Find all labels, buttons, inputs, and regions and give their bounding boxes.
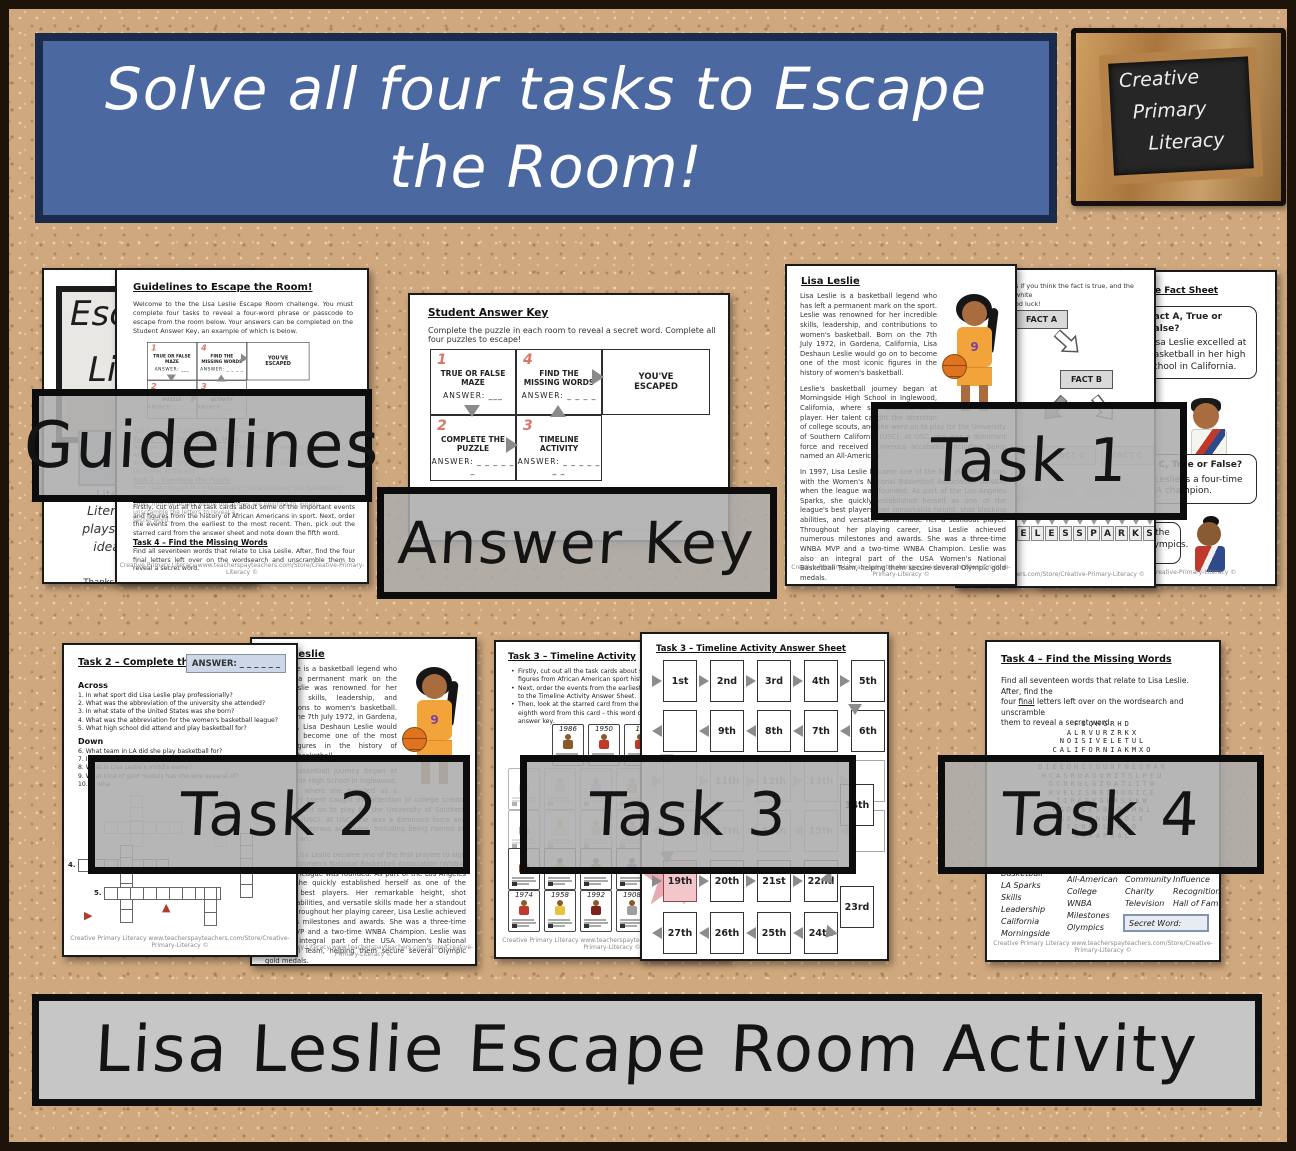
basketball-icon [942,354,967,379]
timeline-box-label: 21st [762,876,785,887]
across-list: 1. In what sport did Lisa Leslie play pr… [78,692,283,733]
timeline-box-label: 6th [859,726,877,737]
word-item: WNBA [1067,898,1118,910]
timeline-box-label: 26th [715,928,740,939]
timeline-arrow-icon [699,675,709,687]
timeline-box-label: 20th [715,876,740,887]
guidelines-task4-heading: Task 4 – Find the Missing Words [133,538,268,547]
crossword-slot-down-c [204,887,217,926]
timeline-arrow-icon [746,725,756,737]
timeline-arrow-icon [793,927,803,939]
arrow-down-icon [464,405,480,417]
banner-line-2: the Room! [389,128,703,206]
ak-ans-1: ANSWER: ___ [431,391,515,400]
timeline-arrow-icon [699,875,709,887]
across-item: 3. In what state of the United States wa… [78,708,283,716]
guidelines-label-text: Guidelines [22,409,383,483]
fact-bubble-a-line: Lisa Leslie excelled at [1148,338,1250,350]
timeline-box-label: 19th [668,876,693,887]
timeline-box: 8th [757,710,791,752]
task-cards-row: 1974 1958 1992 1908 [508,890,648,932]
maze-letter-tile: R [1115,526,1128,541]
guidelines-task3-text: Firstly, cut out all the task cards abou… [133,504,355,539]
secret-word-box: Secret Word: [1123,914,1209,932]
timeline-arrow-icon [652,927,662,939]
maze-letter-column: S [1073,518,1086,541]
ak-ans-3: ANSWER: _ _ _ _ _ _ _ [517,457,601,475]
task2-answer-box: ANSWER: _ _ _ _ _ _ [186,654,286,673]
logo-line-1: Creative [1118,63,1200,97]
task4-intro-2a: four [1001,697,1018,706]
timeline-arrow-icon [699,725,709,737]
timeline-box-label: 2nd [717,676,737,687]
card-stamp [584,882,589,886]
timeline-arrow-icon [746,675,756,687]
maze-intro-line-2: od luck! [1015,300,1147,309]
task3-label-text: Task 3 [587,780,789,850]
wordsearch-row: FSQHGRHD [987,720,1219,729]
task2-label-text: Task 2 [178,780,380,850]
maze-letter-tile: L [1031,526,1044,541]
guidelines-intro: Welcome to the the Lisa Leslie Escape Ro… [133,300,353,336]
timeline-box [663,710,697,752]
arrow-down-icon [167,374,176,381]
maze-letter-tile: S [1059,526,1072,541]
basketball-icon [402,727,427,752]
fact-a-box: FACT A [1015,310,1068,329]
word-list-col-2: All-AmericanCollegeWNBAMilestonesOlympic… [1067,874,1118,934]
diagram-cell-1: TRUE OR FALSE MAZE [148,354,197,364]
task4-title: Task 4 – Find the Missing Words [1001,654,1172,665]
maze-letter-tile: S [1143,526,1156,541]
word-list-col-1: BasketballLA SparksSkillsLeadershipCalif… [1001,868,1050,940]
timeline-box: 4th [804,660,838,702]
maze-letter-column: R [1115,518,1128,541]
answer-key-grid: 1 TRUE OR FALSE MAZE ANSWER: ___ 4 FIND … [430,349,710,481]
maze-letter-tile: K [1129,526,1142,541]
timeline-box: 6th [851,710,885,752]
diagram-ans-4: ANSWER: _ _ _ _ [197,366,246,371]
card-stamp [548,924,553,928]
maze-letter-tile: E [1045,526,1058,541]
task3-answer-sheet-title: Task 3 – Timeline Activity Answer Sheet [656,644,846,654]
card-year: 1986 [553,725,583,733]
word-list-col-3: CommunityCharityTelevision [1125,874,1171,910]
task4-intro-2b: final [1018,697,1034,706]
ak-ans-4: ANSWER: _ _ _ _ [517,391,601,400]
answer-key-label-text: Answer Key [397,509,758,577]
word-item: Morningside [1001,928,1050,940]
diagram-num-1: 1 [151,344,157,353]
ak-num-1: 1 [437,352,447,368]
maze-letter-tile: A [1101,526,1114,541]
card-year: 1974 [509,891,539,899]
maze-letter-column: E [1045,518,1058,541]
card-stamp [584,924,589,928]
page-footer: Creative Primary Literacy www.teacherspa… [64,935,296,949]
logo-line-2: Primary [1132,95,1207,128]
chalkboard: Creative Primary Literacy [1099,47,1264,185]
task4-label-text: Task 4 [1000,780,1202,850]
fact-bubble-a-title: Fact A, True or False? [1148,312,1250,335]
across-item: 4. What was the abbreviation for the wom… [78,717,283,725]
fact-bubble-a-line: basketball in her high [1148,350,1250,362]
ak-ans-2: ANSWER: _ _ _ _ _ _ [431,457,515,475]
timeline-box: 9th [710,710,744,752]
task3-title: Task 3 – Timeline Activity [508,652,636,662]
task1-label-text: Task 1 [928,426,1130,496]
maze-letter-tile: E [1017,526,1030,541]
timeline-arrow-icon [652,675,662,687]
card-year: 1950 [589,725,619,733]
timeline-box: 3rd [757,660,791,702]
timeline-arrow-icon [840,675,850,687]
answer-key-label: Answer Key [377,487,777,599]
top-banner: Solve all four tasks to Escape the Room! [35,33,1057,223]
fact-bubble-a-lines: Lisa Leslie excelled atbasketball in her… [1148,338,1250,373]
ak-cell-2: COMPLETE THE PUZZLE [431,435,515,453]
ak-num-2: 2 [437,418,447,434]
timeline-arrow-icon [652,725,662,737]
diagram-escaped: YOU'VE ESCAPED [260,355,297,367]
timeline-arrow-icon [699,927,709,939]
crossword-num-4: 4. [68,861,76,869]
task4-label: Task 4 [938,755,1264,874]
timeline-box-label: 27th [668,928,693,939]
maze-letter-column: K [1129,518,1142,541]
maze-letter-column: S [1059,518,1072,541]
fact-bubble-a-line: school in California. [1148,362,1250,374]
timeline-arrow-icon [793,875,803,887]
guidelines-label: Guidelines [32,389,372,502]
page-footer: Creative Primary Literacy www.teacherspa… [117,562,367,576]
arrow-up-icon [550,405,566,417]
arrow-right-icon [241,354,248,363]
diagram-num-4: 4 [201,344,207,353]
maze-open-arrow-icon [1049,325,1086,361]
card-year: 1992 [581,891,611,899]
wordsearch-row: NOISIVELETUL [987,737,1219,746]
red-right-arrow-icon: ▶ [84,909,92,922]
logo-line-3: Literacy [1148,126,1226,159]
timeline-box: 1st [663,660,697,702]
passage-title: Lisa Leslie [801,276,860,287]
word-item: College [1067,886,1118,898]
cork-background: Solve all four tasks to Escape the Room!… [0,0,1296,1151]
maze-letter-column: P [1087,518,1100,541]
wordsearch-row: CALIFORNIAKMXO [987,746,1219,755]
card-stamp [512,924,517,928]
maze-letter-tile: S [1073,526,1086,541]
card-stamp [620,924,625,928]
word-item: Leadership [1001,904,1050,916]
timeline-box-label: 5th [859,676,877,687]
timeline-box: 5th [851,660,885,702]
word-list-col-4: InfluenceRecognitionHall of Fame [1173,874,1221,910]
card-stamp [512,882,517,886]
arrow-right-icon [592,369,604,385]
word-item: Recognition [1173,886,1221,898]
maze-letter-column: L [1031,518,1044,541]
across-item: 2. What was the abbreviation of the univ… [78,700,283,708]
across-heading: Across [78,681,108,690]
timeline-arrow-icon [746,875,756,887]
wordsearch-row: ALRVURZRKX [987,729,1219,738]
task4-intro-line-1: Find all seventeen words that relate to … [1001,676,1209,697]
page-footer: Creative Primary Literacy www.teacherspa… [987,940,1219,954]
arrow-up-icon [217,374,226,381]
task4-intro-line-2: four final letters left over on the word… [1001,697,1209,718]
timeline-box-label: 8th [765,726,783,737]
timeline-arrow-icon [793,725,803,737]
diagram-cell-4: FIND THE MISSING WORDS [197,354,246,364]
timeline-box: 2nd [710,660,744,702]
timeline-row-6: 27th26th25th24th [650,912,838,954]
banner-line-1: Solve all four tasks to Escape [105,50,987,128]
maze-letter-column: A [1101,518,1114,541]
diagram-ans-1: ANSWER: ___ [148,366,197,371]
answer-key-title: Student Answer Key [428,307,548,319]
red-up-arrow-icon: ▲ [162,901,170,914]
page-footer: Creative Primary Literacy www.teacherspa… [787,564,1015,578]
down-arrow-icon [848,704,862,715]
word-item: All-American [1067,874,1118,886]
ak-cell-3: TIMELINE ACTIVITY [517,435,601,453]
task3-label: Task 3 [520,755,856,874]
word-item: Skills [1001,892,1050,904]
arrow-right-icon [506,437,518,453]
timeline-box-label: 7th [812,726,830,737]
word-item: Television [1125,898,1171,910]
across-item: 1. In what sport did Lisa Leslie play pr… [78,692,283,700]
timeline-arrow-icon [746,927,756,939]
ak-escaped-cell: YOU'VE ESCAPED [624,372,688,392]
answer-key-intro: Complete the puzzle in each room to reve… [428,326,728,344]
card-stamp [620,882,625,886]
timeline-arrow-icon [793,675,803,687]
fact-b-box: FACT B [1060,370,1113,389]
timeline-task-card: 1974 [508,890,540,932]
timeline-box: 26th [710,912,744,954]
ak-num-4: 4 [523,352,533,368]
fact-sheet-heading: e Fact Sheet [1155,286,1218,296]
timeline-box-label: 1st [672,676,689,687]
word-item: Charity [1125,886,1171,898]
timeline-box-label: 9th [718,726,736,737]
timeline-row-1: 1st2nd3rd4th5th [650,660,885,702]
task2-label: Task 2 [88,755,470,874]
timeline-box-label: 25th [762,928,787,939]
crossword-num-5: 5. [94,889,102,897]
timeline-box-label: 3rd [765,676,783,687]
ak-cell-1: TRUE OR FALSE MAZE [431,369,515,387]
guidelines-title: Guidelines to Escape the Room! [133,282,312,293]
bottom-banner: Lisa Leslie Escape Room Activity [32,994,1262,1106]
lisa-leslie-cartoon: 9 [942,292,1006,414]
card-stamp [548,882,553,886]
ak-num-3: 3 [523,418,533,434]
task1-label: Task 1 [871,402,1187,520]
timeline-row-2: 9th8th7th6th [650,710,885,752]
timeline-arrow-icon [652,875,662,887]
maze-letter-tile: P [1087,526,1100,541]
timeline-task-card: 1992 [580,890,612,932]
word-item: Olympics [1067,922,1118,934]
across-item: 5. What high school did attend and play … [78,725,283,733]
down-heading: Down [78,737,103,746]
word-item: California [1001,916,1050,928]
timeline-box-23rd: 23rd [840,886,874,928]
ak-cell-4: FIND THE MISSING WORDS [517,369,601,387]
creative-primary-literacy-logo: Creative Primary Literacy [1071,28,1286,206]
maze-letter-column: E [1017,518,1030,541]
timeline-box-label: 4th [812,676,830,687]
timeline-task-card: 1958 [544,890,576,932]
bottom-banner-text: Lisa Leslie Escape Room Activity [93,1013,1200,1087]
timeline-arrow-icon [840,725,850,737]
word-item: LA Sparks [1001,880,1050,892]
word-item: Community [1125,874,1171,886]
timeline-box: 7th [804,710,838,752]
word-item: Hall of Fame [1173,898,1221,910]
word-item: Influence [1173,874,1221,886]
maze-letter-column: S [1143,518,1156,541]
word-item: Milestones [1067,910,1118,922]
maze-intro-line-1: s if you think the fact is true, and the… [1015,282,1147,300]
timeline-box: 25th [757,912,791,954]
card-year: 1958 [545,891,575,899]
timeline-box: 27th [663,912,697,954]
